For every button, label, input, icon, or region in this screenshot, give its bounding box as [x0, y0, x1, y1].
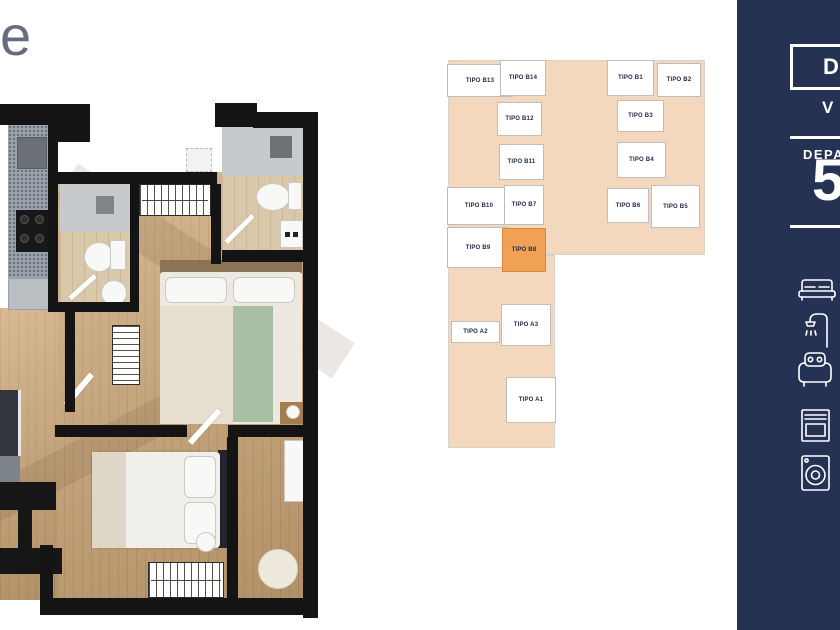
wall: [227, 437, 238, 607]
hall-closet: [112, 325, 140, 385]
pillow: [165, 277, 227, 303]
keyplan-unit: TIPO B10: [447, 187, 511, 225]
keyplan-unit: TIPO B9: [447, 227, 509, 268]
keyplan-unit: TIPO B7: [504, 185, 544, 225]
lamp: [196, 532, 216, 552]
tall-cabinet: [0, 390, 21, 456]
pillow: [233, 277, 295, 303]
unit-number: 5: [812, 152, 840, 210]
wall: [228, 425, 305, 437]
exterior-unit: [186, 148, 212, 172]
oven-icon: [800, 408, 831, 443]
wall: [56, 104, 90, 142]
keyplan-unit: TIPO B11: [499, 144, 544, 180]
keyplan-unit: TIPO A3: [501, 304, 551, 346]
toilet: [256, 183, 290, 211]
wall: [130, 184, 139, 310]
wall: [222, 250, 305, 262]
keyplan-unit: TIPO B14: [500, 60, 546, 96]
bed1-sheet: [160, 306, 233, 424]
keyplan-unit: TIPO B12: [497, 102, 542, 136]
bathroom-a-shower: [60, 184, 130, 232]
pillow: [184, 456, 216, 498]
lamp: [286, 405, 300, 419]
wall: [211, 184, 221, 264]
keyplan-unit: TIPO A2: [451, 321, 500, 343]
kitchen-sink: [17, 137, 47, 169]
shower-fixture: [96, 196, 114, 214]
shower-icon: [803, 311, 831, 349]
keyplan-unit: TIPO A1: [506, 377, 556, 423]
wall: [215, 103, 257, 127]
armchair-icon: [796, 350, 834, 388]
wall: [0, 104, 58, 125]
keyplan-unit: TIPO B3: [617, 100, 664, 132]
bath-cabinet: [280, 220, 303, 248]
washing-machine-icon: [800, 454, 831, 492]
bed-icon: [797, 277, 837, 303]
console-gray: [0, 456, 20, 482]
wall: [40, 598, 318, 615]
shower-fixture: [270, 136, 292, 158]
wall: [55, 172, 217, 184]
keyplan-unit: TIPO B4: [617, 142, 666, 178]
toilet-tank: [288, 182, 302, 210]
keyplan-unit: TIPO B6: [607, 188, 649, 223]
divider: [790, 136, 840, 139]
stove-cooktop: [16, 210, 50, 252]
wall: [48, 125, 58, 312]
keyplan-unit-highlighted: TIPO B8: [502, 228, 546, 272]
wall: [40, 545, 53, 605]
keyplan-unit: TIPO B5: [651, 185, 700, 228]
divider: [790, 225, 840, 228]
wall: [65, 310, 75, 412]
closet-hangers: [139, 184, 211, 216]
bed2-blanket: [92, 452, 126, 548]
view-label: V: [822, 98, 833, 118]
bench: [284, 440, 304, 502]
keyplan-unit: TIPO B2: [657, 63, 701, 97]
wall: [303, 112, 318, 618]
closet-hangers: [148, 562, 224, 598]
bed1-green-throw: [233, 306, 273, 422]
kitchen-appliance: [8, 278, 50, 310]
toilet-tank: [110, 240, 126, 270]
keyplan-unit: TIPO B1: [607, 60, 654, 96]
round-rug: [258, 549, 298, 589]
availability-badge: D: [790, 44, 840, 90]
listing-image: e: [0, 0, 840, 630]
badge-letter: D: [823, 54, 839, 80]
info-sidebar: D V DEPA 5: [737, 0, 840, 630]
brand-logo-letter: e: [0, 8, 31, 64]
tv-unit: [0, 482, 56, 510]
wall: [55, 425, 187, 437]
